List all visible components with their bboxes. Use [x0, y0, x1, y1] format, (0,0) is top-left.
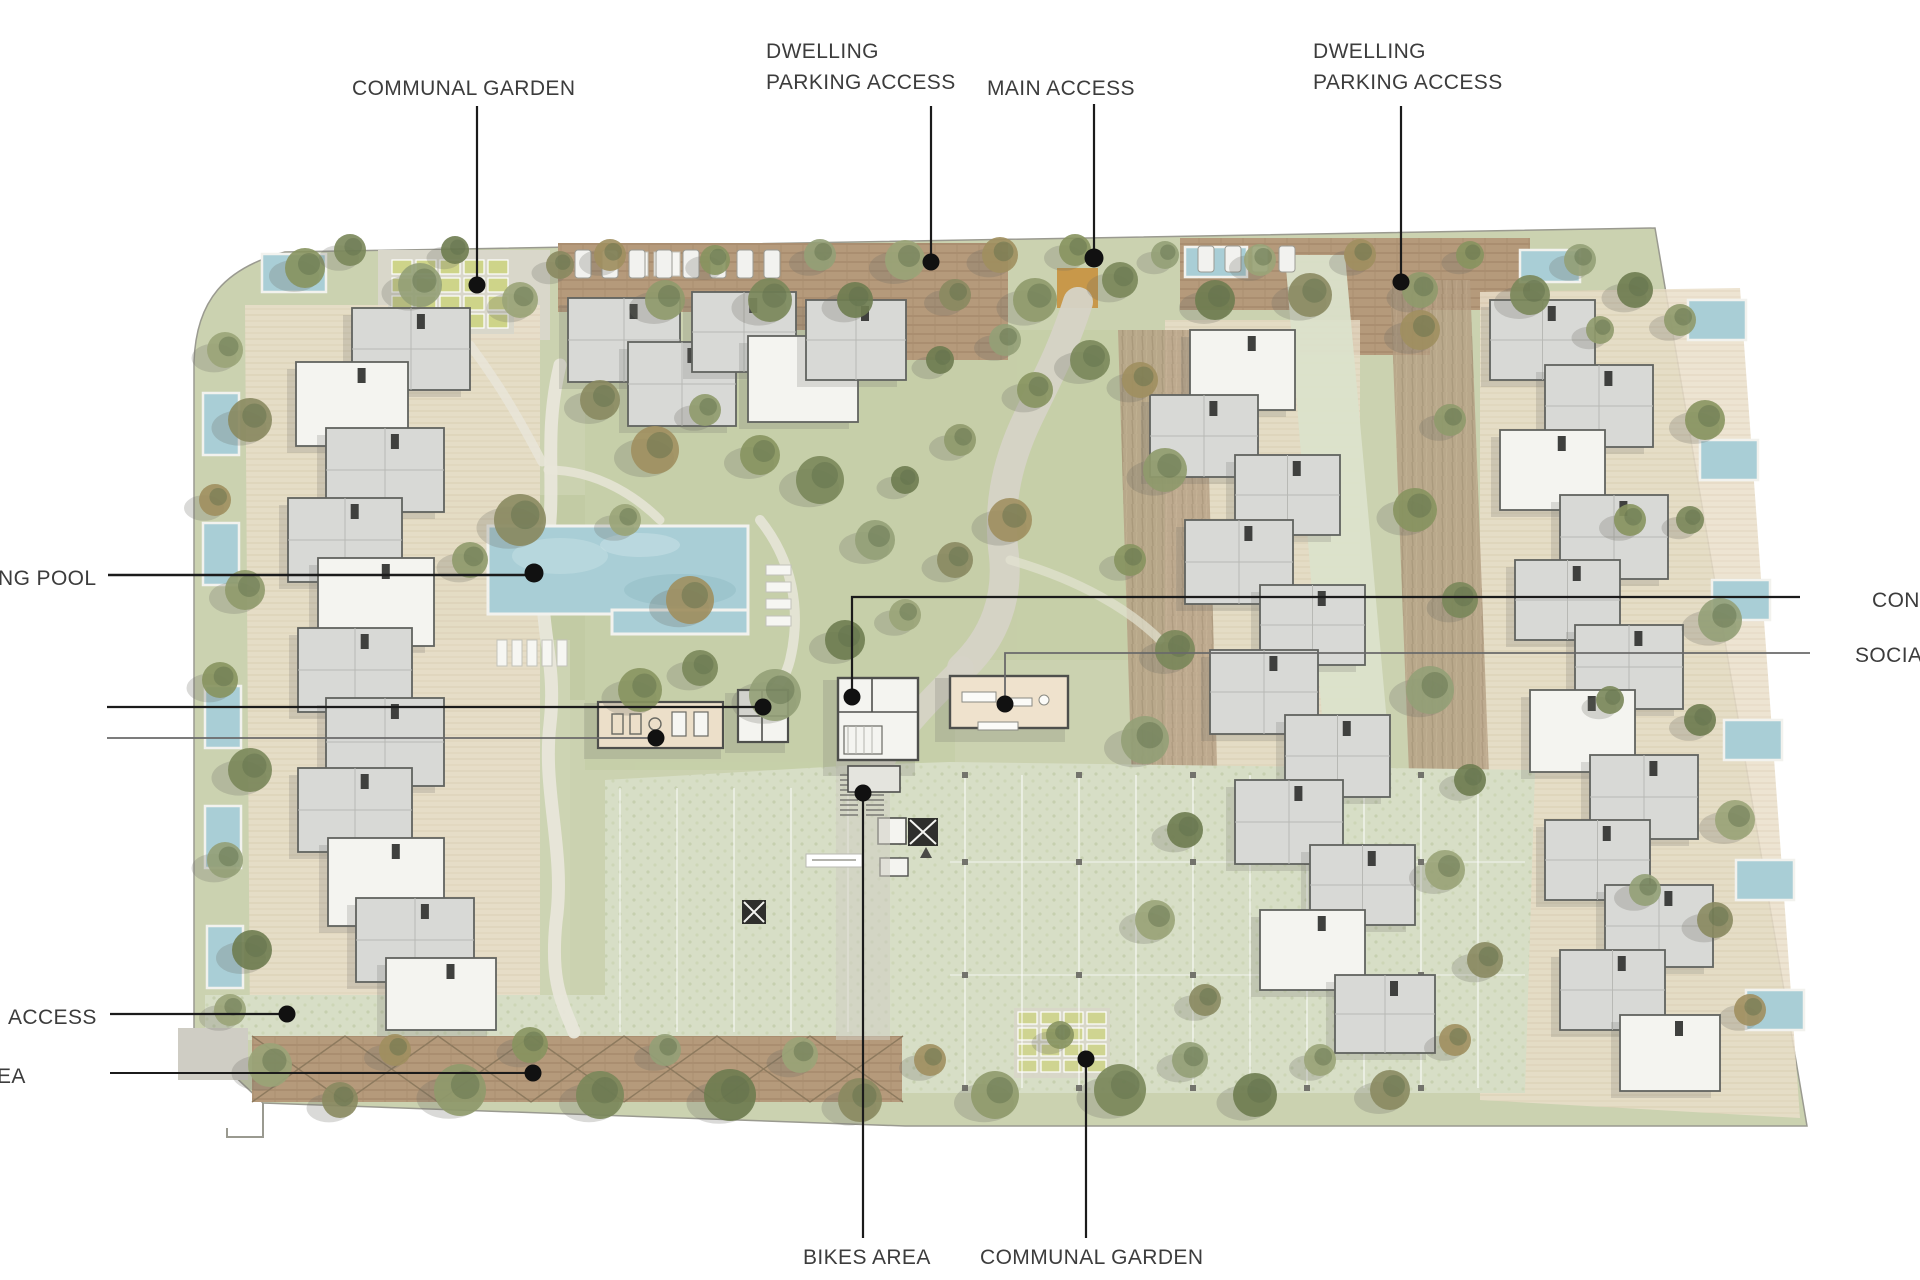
leader-dot — [1078, 1051, 1095, 1068]
leader-dot — [469, 277, 486, 294]
garden-bed — [1087, 1012, 1106, 1024]
bottom-access-road — [205, 995, 905, 1040]
lounger — [497, 640, 507, 666]
villa-pool — [1724, 720, 1782, 760]
lounger — [766, 565, 791, 575]
garden-bed — [1018, 1060, 1037, 1072]
chimney — [417, 314, 425, 329]
chimney — [382, 564, 390, 579]
chimney — [421, 904, 429, 919]
column — [1304, 1085, 1310, 1091]
concierge-building — [823, 678, 918, 792]
chimney — [1390, 981, 1398, 996]
leader-dot — [525, 1065, 542, 1082]
chimney — [1603, 826, 1611, 841]
chimney — [1244, 526, 1252, 541]
column — [1076, 772, 1082, 778]
leader-dot — [844, 689, 861, 706]
column — [1418, 772, 1424, 778]
label-swimming-pool: NG POOL — [0, 563, 97, 594]
chimney — [1664, 891, 1672, 906]
label-main-access: MAIN ACCESS — [987, 73, 1135, 104]
car — [737, 250, 753, 278]
label-area: EA — [0, 1061, 26, 1092]
chimney — [1558, 436, 1566, 451]
villa-pool — [1736, 860, 1794, 900]
lounger — [557, 640, 567, 666]
dwelling-building — [1611, 1015, 1720, 1098]
lounger — [542, 640, 552, 666]
label-access: ACCESS — [8, 1002, 97, 1033]
leader-dot — [855, 785, 872, 802]
label-bikes-area: BIKES AREA — [803, 1242, 931, 1273]
column — [962, 972, 968, 978]
label-communal-garden-bottom: COMMUNAL GARDEN — [980, 1242, 1203, 1273]
car — [1279, 246, 1295, 272]
car — [764, 250, 780, 278]
car — [1198, 246, 1214, 272]
dwelling-building — [1326, 975, 1435, 1060]
garden-bed — [1018, 1012, 1037, 1024]
label-dwelling-parking-access-left: DWELLING PARKING ACCESS — [766, 36, 956, 98]
boundary-notch — [227, 1103, 263, 1137]
lounger — [766, 599, 791, 609]
leader-dot — [755, 699, 772, 716]
chimney — [392, 844, 400, 859]
label-line: DWELLING — [1313, 36, 1503, 67]
chimney — [1675, 1021, 1683, 1036]
chimney — [1343, 721, 1351, 736]
column — [1190, 972, 1196, 978]
leader-dot — [1085, 249, 1104, 268]
chimney — [1634, 631, 1642, 646]
column — [1190, 859, 1196, 865]
chimney — [447, 964, 455, 979]
villa-pool — [1700, 440, 1758, 480]
chimney — [1209, 401, 1217, 416]
chimney — [361, 634, 369, 649]
garden-bed — [464, 260, 484, 274]
leader-dot — [525, 564, 544, 583]
chimney — [361, 774, 369, 789]
column — [1076, 972, 1082, 978]
column — [962, 772, 968, 778]
chimney — [1294, 786, 1302, 801]
label-social: SOCIA — [1855, 640, 1920, 671]
label-concierge: CON — [1872, 585, 1920, 616]
column — [1076, 859, 1082, 865]
chimney — [1604, 371, 1612, 386]
leader-dot — [1393, 274, 1410, 291]
chimney — [1368, 851, 1376, 866]
chimney — [1573, 566, 1581, 581]
column — [962, 859, 968, 865]
label-line: PARKING ACCESS — [766, 67, 956, 98]
garden-bed — [1087, 1028, 1106, 1040]
villa-pool — [1688, 300, 1746, 340]
masterplan-page: COMMUNAL GARDEN DWELLING PARKING ACCESS … — [0, 0, 1920, 1280]
car — [656, 250, 672, 278]
column — [1190, 772, 1196, 778]
site-plan-drawing — [0, 0, 1920, 1280]
leader-dot — [279, 1006, 296, 1023]
leader-dot — [923, 254, 940, 271]
chimney — [1269, 656, 1277, 671]
chimney — [1618, 956, 1626, 971]
leader-dot — [648, 730, 665, 747]
chimney — [1548, 306, 1556, 321]
chimney — [1318, 591, 1326, 606]
chimney — [391, 434, 399, 449]
chimney — [358, 368, 366, 383]
garden-bed — [440, 278, 460, 292]
chimney — [1293, 461, 1301, 476]
lounger — [512, 640, 522, 666]
column — [1190, 1085, 1196, 1091]
leader-dot — [997, 696, 1014, 713]
label-communal-garden-top: COMMUNAL GARDEN — [352, 73, 575, 104]
chimney — [1649, 761, 1657, 776]
garden-bed — [488, 278, 508, 292]
chimney — [1318, 916, 1326, 931]
car — [629, 250, 645, 278]
garden-bed — [488, 260, 508, 274]
lounger — [766, 616, 791, 626]
label-line: PARKING ACCESS — [1313, 67, 1503, 98]
label-line: DWELLING — [766, 36, 956, 67]
chimney — [1248, 336, 1256, 351]
column — [1418, 1085, 1424, 1091]
chimney — [351, 504, 359, 519]
garden-bed — [1041, 1060, 1060, 1072]
dwelling-building — [377, 958, 496, 1037]
label-dwelling-parking-access-right: DWELLING PARKING ACCESS — [1313, 36, 1503, 98]
lounger — [766, 582, 791, 592]
garden-bed — [1064, 1012, 1083, 1024]
lounger — [527, 640, 537, 666]
